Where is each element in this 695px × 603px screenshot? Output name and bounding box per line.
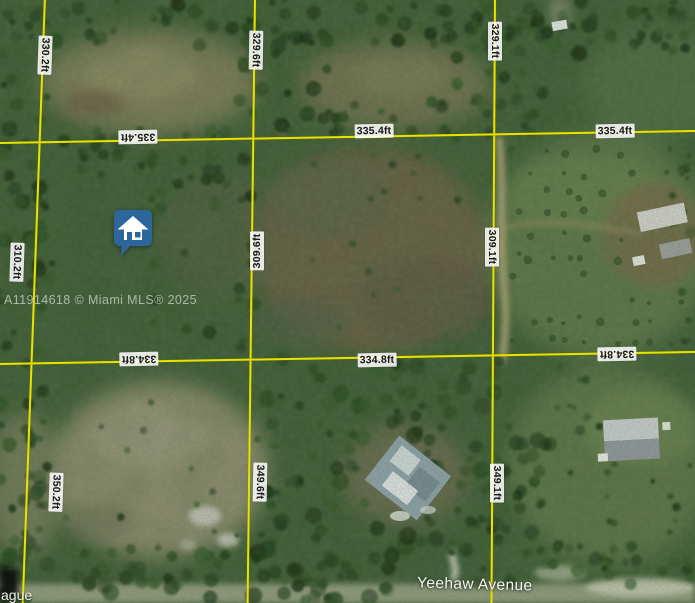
dim-label-h2-center: 334.8ft bbox=[358, 353, 397, 368]
satellite-map[interactable]: 330.2ft 329.6ft 329.1ft 335.4ft 335.4ft … bbox=[0, 0, 695, 603]
dim-label-h1-center: 335.4ft bbox=[355, 124, 394, 139]
dim-label-h2-left: 334.8ft bbox=[120, 352, 159, 367]
dim-label-h1-left: 335.4ft bbox=[119, 130, 158, 145]
dim-label-mid-center: 309.6ft bbox=[250, 232, 264, 271]
dim-label-top-right: 329.1ft bbox=[488, 22, 502, 61]
dim-label-mid-left: 310.2ft bbox=[9, 242, 24, 281]
dim-label-bottom-left: 350.2ft bbox=[48, 472, 63, 511]
home-marker[interactable] bbox=[112, 208, 154, 256]
street-label-partial: ague bbox=[1, 587, 32, 603]
dim-label-top-left: 330.2ft bbox=[37, 35, 52, 74]
street-label-yeehaw-avenue: Yeehaw Avenue bbox=[417, 574, 533, 595]
dim-label-mid-right: 309.1ft bbox=[485, 228, 499, 267]
dim-label-h1-right: 335.4ft bbox=[596, 124, 635, 139]
dim-label-top-center: 329.6ft bbox=[249, 31, 264, 70]
dim-label-bottom-center: 349.6ft bbox=[253, 463, 268, 502]
dim-label-h2-right: 334.8ft bbox=[598, 347, 637, 362]
watermark: A11914618 © Miami MLS® 2025 bbox=[4, 293, 197, 307]
dim-label-bottom-right: 349.1ft bbox=[490, 464, 504, 503]
